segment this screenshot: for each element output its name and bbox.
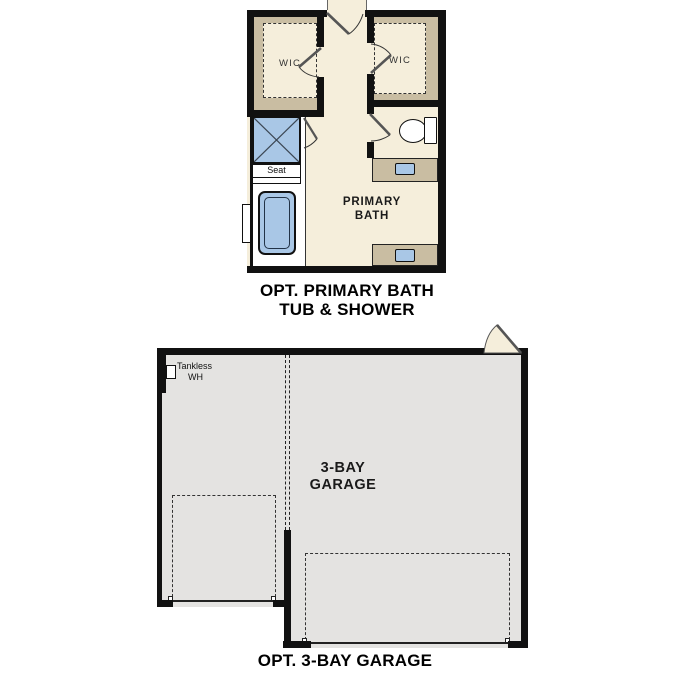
shower-threshold <box>252 177 301 184</box>
garage-room-label: 3-BAY GARAGE <box>263 460 423 494</box>
garage-wall-bottom2-b <box>508 641 528 648</box>
garage-room-label-line1: 3-BAY <box>263 460 423 477</box>
tankless-label: Tankless WH <box>177 361 212 382</box>
wic-right-label: WIC <box>374 55 426 66</box>
bath-caption: OPT. PRIMARY BATH TUB & SHOWER <box>197 281 497 319</box>
garage-partition-wall <box>284 530 291 648</box>
bath-wall-top-right <box>365 10 446 17</box>
sink-lower <box>395 249 415 262</box>
toilet-room-wall-top <box>367 100 446 107</box>
shower-x-mark <box>254 118 299 162</box>
garage-wall-left-thick <box>157 348 166 393</box>
garage-wall-top <box>157 348 528 355</box>
garage-wall-bottom2-a <box>283 641 311 648</box>
tub <box>258 191 296 255</box>
garage-room-label-line2: GARAGE <box>263 477 423 494</box>
bath-window <box>242 204 251 243</box>
garage-caption: OPT. 3-BAY GARAGE <box>195 651 495 670</box>
toilet-door-swing-icon <box>370 114 390 141</box>
bath-wall-top-left <box>247 10 327 17</box>
bath-wall-left-upper <box>247 10 254 117</box>
bath-caption-line2: TUB & SHOWER <box>197 300 497 319</box>
bath-room-label-line2: BATH <box>322 210 422 224</box>
toilet-tank <box>424 117 437 144</box>
bath-entry-hall <box>327 0 367 10</box>
floor-plan-sheet: WIC WIC Seat PRIMARY <box>0 0 687 687</box>
wic-left-wall-bottom <box>247 110 324 117</box>
garage-door-track-left <box>172 495 276 602</box>
wic-left-label: WIC <box>263 58 317 69</box>
shower-seat: Seat <box>252 164 301 178</box>
bath-plan: WIC WIC Seat PRIMARY <box>247 10 446 273</box>
garage-door-sill-right <box>311 642 508 644</box>
garage-caption-line1: OPT. 3-BAY GARAGE <box>195 651 495 670</box>
toilet-room-wall-b <box>367 142 374 158</box>
tankless-water-heater <box>166 365 176 379</box>
toilet-room-wall-a <box>367 107 374 114</box>
tankless-label-line2: WH <box>188 372 212 383</box>
tankless-label-line1: Tankless <box>177 361 212 372</box>
wic-right-wall-b <box>367 74 374 100</box>
shower <box>252 116 301 164</box>
seat-label: Seat <box>267 165 286 175</box>
wic-right-wall-a <box>367 10 374 43</box>
garage-plan: Tankless WH 3-BAY GARAGE <box>157 348 528 648</box>
bath-room-label: PRIMARY BATH <box>322 196 422 223</box>
wic-left-wall-a <box>317 10 324 47</box>
garage-partition-dashed-a <box>285 355 286 530</box>
entry-door-swing-icon <box>327 13 363 34</box>
toilet-bowl <box>399 119 427 143</box>
garage-door-track-right <box>305 553 510 645</box>
sink-upper <box>395 163 415 175</box>
bath-caption-line1: OPT. PRIMARY BATH <box>197 281 497 300</box>
tub-basin <box>264 197 290 249</box>
garage-door-sill-left <box>173 600 273 602</box>
bath-wall-right <box>438 10 446 273</box>
garage-partition-dashed-b <box>289 355 290 530</box>
garage-wall-right <box>521 348 528 648</box>
bath-wall-left-lower <box>250 115 253 267</box>
bath-room-label-line1: PRIMARY <box>322 196 422 210</box>
garage-wall-bottom1-a <box>157 600 173 607</box>
bath-wall-bottom <box>247 266 446 273</box>
